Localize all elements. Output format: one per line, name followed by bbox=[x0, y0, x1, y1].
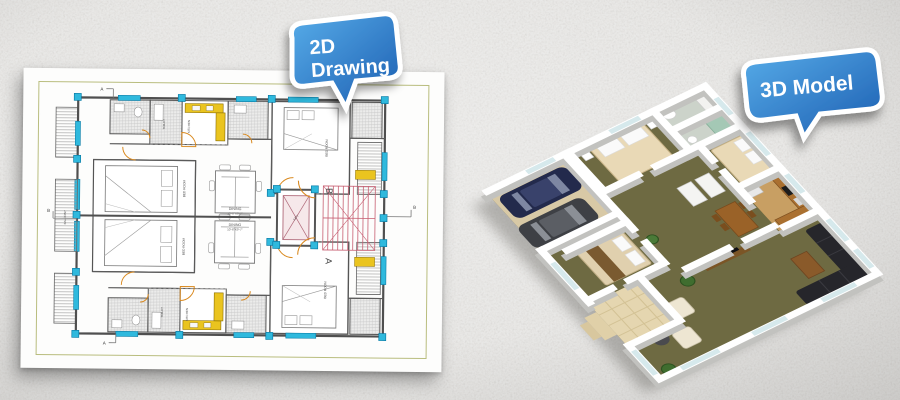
svg-text:BALCONY: BALCONY bbox=[63, 210, 67, 224]
svg-text:KITCHEN: KITCHEN bbox=[187, 120, 191, 133]
scene: B A DINING 10'-6"X9'-7" DINING 10'-6"X9'… bbox=[0, 0, 900, 400]
callout-3d-model: 3D Model bbox=[724, 44, 896, 166]
callout-2d-drawing: 2D Drawing bbox=[272, 8, 418, 134]
svg-text:BED ROOM: BED ROOM bbox=[325, 139, 329, 157]
svg-text:10'-6"X9'-7": 10'-6"X9'-7" bbox=[227, 211, 243, 215]
section-a-top: A bbox=[100, 87, 103, 92]
svg-text:BED ROOM: BED ROOM bbox=[323, 281, 327, 299]
callout-2d-line1: 2D bbox=[309, 35, 336, 59]
svg-text:BED ROOM: BED ROOM bbox=[182, 237, 186, 255]
section-b-left: B bbox=[47, 208, 50, 213]
section-a-bottom: A bbox=[103, 341, 106, 346]
svg-text:DINING: DINING bbox=[229, 207, 242, 211]
unit-b-label: B bbox=[324, 188, 334, 194]
svg-text:DINING: DINING bbox=[229, 223, 242, 227]
svg-text:TOILET: TOILET bbox=[162, 119, 166, 130]
section-b-right: B bbox=[413, 205, 416, 210]
svg-text:10'-6"X9'-7": 10'-6"X9'-7" bbox=[227, 227, 243, 231]
svg-text:TOILET: TOILET bbox=[160, 307, 164, 318]
svg-text:KITCHEN: KITCHEN bbox=[185, 308, 189, 321]
unit-a-label: A bbox=[324, 258, 334, 264]
svg-text:BED ROOM: BED ROOM bbox=[182, 179, 186, 197]
